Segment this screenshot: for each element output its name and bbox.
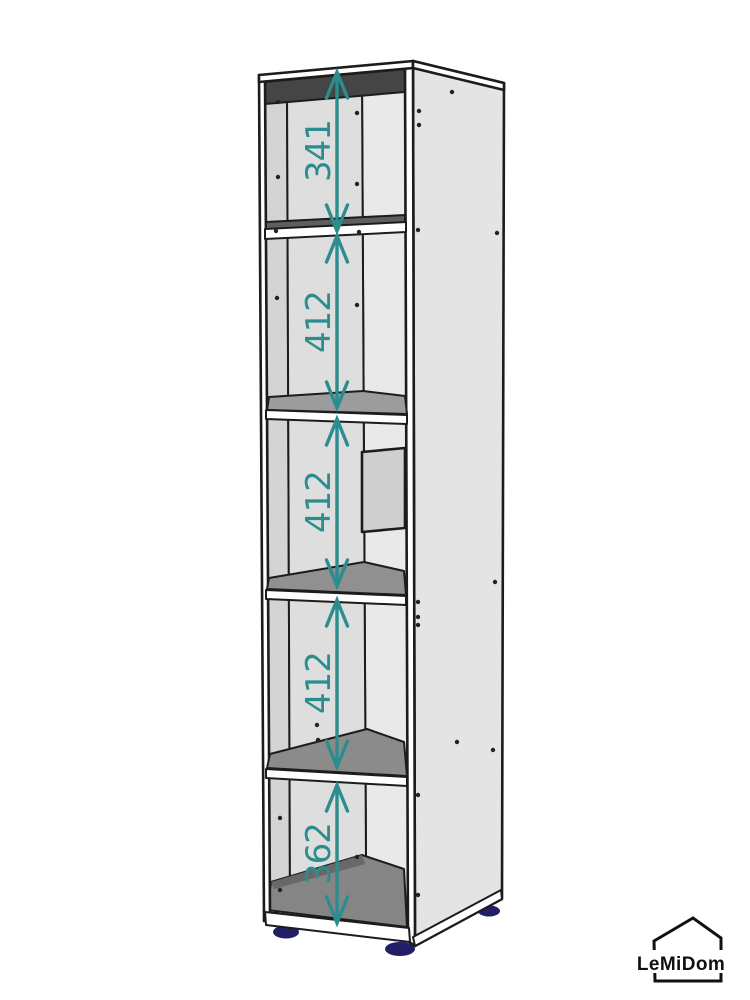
drill-hole — [416, 600, 420, 604]
drill-hole — [276, 175, 280, 179]
drill-hole — [417, 109, 421, 113]
drill-hole — [491, 748, 495, 752]
drill-hole — [355, 303, 359, 307]
drill-hole — [278, 888, 282, 892]
right-panel-front-edge — [405, 61, 415, 946]
drill-hole — [416, 793, 420, 797]
dimension-label: 362 — [299, 823, 339, 885]
drill-hole — [315, 723, 319, 727]
drill-hole — [316, 738, 320, 742]
furniture-dimension-diagram: 341412412412362 LeMiDom — [0, 0, 750, 1000]
drill-hole — [274, 229, 278, 233]
drill-hole — [416, 615, 420, 619]
drill-hole — [355, 111, 359, 115]
drill-hole — [357, 230, 361, 234]
drill-hole — [450, 90, 454, 94]
brand-logo: LeMiDom — [637, 918, 725, 981]
drill-hole — [276, 100, 280, 104]
drill-hole — [416, 623, 420, 627]
dimension-label: 412 — [299, 471, 339, 533]
cabinet-right-side-panel — [413, 61, 504, 946]
cabinet-illustration: 341412412412362 LeMiDom — [0, 0, 750, 1000]
drill-hole — [495, 231, 499, 235]
back-mounting-plate — [362, 448, 405, 532]
drill-hole — [493, 580, 497, 584]
dimension-label: 341 — [299, 120, 339, 182]
drill-hole — [416, 893, 420, 897]
drill-hole — [355, 182, 359, 186]
drill-hole — [275, 296, 279, 300]
drill-hole — [417, 123, 421, 127]
dimension-label: 412 — [299, 652, 339, 714]
dimension-label: 412 — [299, 291, 339, 353]
drill-hole — [416, 228, 420, 232]
drill-hole — [278, 816, 282, 820]
drill-hole — [355, 855, 359, 859]
logo-text: LeMiDom — [637, 954, 725, 975]
drill-hole — [455, 740, 459, 744]
